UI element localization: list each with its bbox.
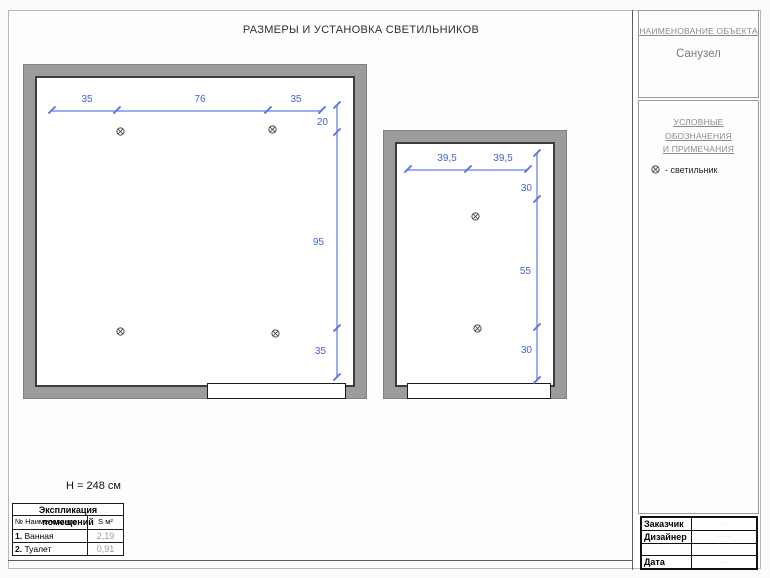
page-title: РАЗМЕРЫ И УСТАНОВКА СВЕТИЛЬНИКОВ (161, 24, 561, 36)
titleblock-label (642, 544, 692, 556)
room-number: 1. (15, 531, 22, 541)
object-name-heading: НАИМЕНОВАНИЕ ОБЪЕКТА (639, 25, 758, 39)
light-icon (473, 320, 482, 329)
light-icon (471, 208, 480, 217)
room-name: Ванная (24, 531, 53, 541)
toilet-door-opening (407, 383, 551, 399)
title-block-row: Заказчик ·· (642, 518, 756, 530)
title-block-row: Дата · ·· (642, 555, 756, 568)
dim-label: 35 (276, 94, 316, 105)
legend-box: УСЛОВНЫЕ ОБОЗНАЧЕНИЯ И ПРИМЕЧАНИЯ - свет… (638, 100, 759, 514)
light-icon (116, 323, 125, 332)
table-header-row: № Наименование S м² (13, 516, 123, 529)
legend-item: - светильник (651, 161, 717, 179)
light-icon (268, 121, 277, 130)
dim-label: 95 (294, 237, 324, 248)
room-area-cell: 2,19 (88, 530, 123, 542)
titleblock-value: ·· (692, 519, 756, 528)
object-name-box: НАИМЕНОВАНИЕ ОБЪЕКТА Санузел (638, 10, 759, 98)
dim-label: 30 (504, 183, 532, 194)
dim-label: 76 (180, 94, 220, 105)
titleblock-label: Дизайнер (642, 531, 692, 543)
titleblock-label: Дата (642, 556, 692, 568)
room-name: Туалет (24, 544, 51, 554)
dim-label: 30 (504, 345, 532, 356)
room-name-cell: 2. Туалет (13, 543, 88, 555)
table-row: 2. Туалет 0,91 (13, 542, 123, 555)
explication-table: Экспликация помещений № Наименование S м… (12, 503, 124, 556)
room-name-cell: 1. Ванная (13, 530, 88, 542)
dim-label: 55 (503, 266, 531, 277)
ceiling-height-note: Н = 248 см (66, 480, 121, 492)
title-block: Заказчик ·· Дизайнер ·· ·· Дата · ·· (640, 516, 758, 570)
dimension-line (536, 153, 538, 380)
titleblock-value: ·· ·· (692, 532, 756, 541)
legend-heading-line2: И ПРИМЕЧАНИЯ (639, 143, 758, 157)
explication-grid: № Наименование S м² 1. Ванная 2,19 2. Ту… (12, 516, 124, 556)
titleblock-value: · ·· (692, 558, 756, 567)
panel-divider-line (632, 10, 633, 570)
bathroom-door-opening (207, 383, 346, 399)
drawing-frame-bottom-line (8, 560, 633, 561)
titleblock-label: Заказчик (642, 518, 692, 530)
light-icon (271, 325, 280, 334)
explication-title: Экспликация помещений (12, 503, 124, 516)
col-header-name: № Наименование (13, 516, 88, 529)
legend-heading-line1: УСЛОВНЫЕ ОБОЗНАЧЕНИЯ (639, 116, 758, 143)
dim-label: 35 (296, 346, 326, 357)
dim-label: 39,5 (427, 153, 467, 164)
legend-item-label: - светильник (665, 165, 717, 175)
dim-label: 35 (67, 94, 107, 105)
title-block-row (642, 543, 756, 556)
dimension-line (336, 105, 338, 377)
dim-label: 39,5 (483, 153, 523, 164)
drawing-sheet-page: РАЗМЕРЫ И УСТАНОВКА СВЕТИЛЬНИКОВ 35 76 3… (0, 0, 770, 578)
room-area-cell: 0,91 (88, 543, 123, 555)
title-block-row: Дизайнер ·· ·· (642, 530, 756, 543)
light-icon (651, 161, 660, 179)
light-icon (116, 123, 125, 132)
dim-label: 20 (298, 117, 328, 128)
room-number: 2. (15, 544, 22, 554)
dimension-line (52, 110, 322, 112)
table-row: 1. Ванная 2,19 (13, 529, 123, 542)
object-name: Санузел (639, 48, 758, 60)
col-header-area: S м² (88, 516, 123, 529)
